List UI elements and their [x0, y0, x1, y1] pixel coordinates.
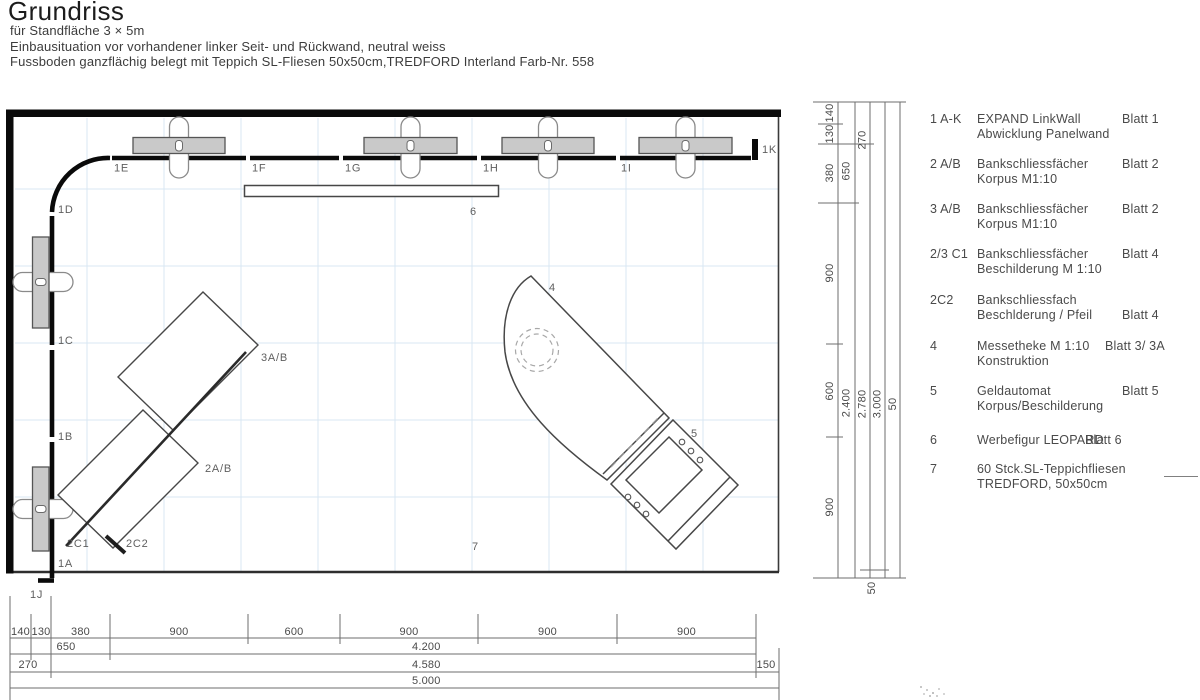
- legend-description: Geldautomat Korpus/Beschilderung: [977, 384, 1127, 413]
- legend-description: EXPAND LinkWall Abwicklung Panelwand: [977, 112, 1127, 141]
- legend-code: 5: [930, 384, 937, 398]
- pencil-smudge: [920, 686, 922, 688]
- svg-text:270: 270: [857, 131, 869, 150]
- svg-text:380: 380: [824, 164, 836, 183]
- leopard-figure-plan: [245, 186, 499, 197]
- legend-desc-line1: Bankschliessfächer: [977, 247, 1127, 262]
- legend-code: 4: [930, 339, 937, 353]
- legend-code: 7: [930, 462, 937, 476]
- item-label-korpus3: 3A/B: [261, 352, 288, 364]
- wall-label-1h: 1H: [483, 163, 499, 175]
- legend-desc-line1: Bankschliessfach: [977, 293, 1127, 308]
- legend-description: 60 Stck.SL-Teppichfliesen TREDFORD, 50x5…: [977, 462, 1127, 491]
- legend-desc-line1: 60 Stck.SL-Teppichfliesen: [977, 462, 1127, 477]
- wall-label-1d: 1D: [58, 204, 74, 216]
- outer-wall-left: [6, 110, 14, 574]
- svg-text:380: 380: [71, 626, 90, 638]
- dimension-text-bottom: 140 130 380 900 600 900 900 900 650 270 …: [11, 626, 775, 687]
- dimension-text-right: 140 130 380 900 600 900 650 2.400 270 2.…: [824, 104, 899, 595]
- item-label-2c1: 2C1: [67, 538, 90, 550]
- legend-code: 2/3 C1: [930, 247, 968, 261]
- locker-boxes-top: [133, 138, 732, 154]
- legend-desc-line2: Konstruktion: [977, 354, 1127, 369]
- svg-text:3.000: 3.000: [872, 390, 884, 419]
- wall-label-1a: 1A: [58, 558, 73, 570]
- svg-text:900: 900: [170, 626, 189, 638]
- legend-sheet-ref: Blatt 3/ 3A: [1105, 339, 1165, 353]
- wall-label-1b: 1B: [58, 431, 73, 443]
- svg-text:130: 130: [32, 626, 51, 638]
- legend-desc-line2: Abwicklung Panelwand: [977, 127, 1127, 142]
- item-label-2c2: 2C2: [126, 538, 149, 550]
- lockers-top: [133, 117, 732, 178]
- wall-label-1j: 1J: [30, 589, 43, 601]
- legend-desc-line1: EXPAND LinkWall: [977, 112, 1127, 127]
- wall-label-1i: 1I: [621, 163, 632, 175]
- svg-text:650: 650: [841, 162, 853, 181]
- svg-text:4.580: 4.580: [412, 659, 441, 671]
- item-label-teppich: 7: [472, 541, 479, 553]
- svg-text:600: 600: [824, 382, 836, 401]
- legend-desc-line2: Korpus M1:10: [977, 172, 1127, 187]
- svg-text:600: 600: [285, 626, 304, 638]
- item-label-leopard: 6: [470, 206, 477, 218]
- legend-code: 3 A/B: [930, 202, 961, 216]
- legend-desc-line2: Korpus/Beschilderung: [977, 399, 1127, 414]
- svg-text:900: 900: [677, 626, 696, 638]
- svg-text:900: 900: [538, 626, 557, 638]
- legend-rule-line: [1164, 476, 1198, 477]
- legend-code: 1 A-K: [930, 112, 962, 126]
- item-label-korpus2: 2A/B: [205, 463, 232, 475]
- legend-sheet-ref: Blatt 6: [1085, 433, 1122, 447]
- svg-text:4.200: 4.200: [412, 641, 441, 653]
- item-label-atm: 5: [691, 428, 698, 440]
- legend-sheet-ref: Blatt 4: [1122, 247, 1159, 261]
- legend-sheet-ref: Blatt 4: [1122, 308, 1159, 322]
- legend-desc-line2: Beschlderung / Pfeil: [977, 308, 1127, 323]
- legend-sheet-ref: Blatt 2: [1122, 202, 1159, 216]
- legend-desc-line1: Bankschliessfächer: [977, 202, 1127, 217]
- wall-label-1e: 1E: [114, 163, 129, 175]
- legend-sheet-ref: Blatt 5: [1122, 384, 1159, 398]
- svg-text:5.000: 5.000: [412, 675, 441, 687]
- wall-label-1c: 1C: [58, 335, 74, 347]
- svg-text:140: 140: [11, 626, 30, 638]
- legend-description: Bankschliessfächer Korpus M1:10: [977, 202, 1127, 231]
- legend-description: Bankschliessfach Beschlderung / Pfeil: [977, 293, 1127, 322]
- legend-desc-line2: TREDFORD, 50x50cm: [977, 477, 1127, 492]
- legend-code: 2 A/B: [930, 157, 961, 171]
- legend-description: Bankschliessfächer Beschilderung M 1:10: [977, 247, 1127, 276]
- lockers-left: [13, 237, 73, 551]
- svg-text:150: 150: [757, 659, 776, 671]
- furniture: [58, 186, 738, 554]
- svg-text:270: 270: [19, 659, 38, 671]
- svg-text:2.400: 2.400: [841, 389, 853, 418]
- legend-desc-line2: Korpus M1:10: [977, 217, 1127, 232]
- svg-text:900: 900: [824, 498, 836, 517]
- wall-label-1g: 1G: [345, 163, 361, 175]
- item-label-theke: 4: [549, 282, 556, 294]
- legend-sheet-ref: Blatt 1: [1122, 112, 1159, 126]
- legend-desc-line1: Geldautomat: [977, 384, 1127, 399]
- legend-desc-line2: Beschilderung M 1:10: [977, 262, 1127, 277]
- wall-label-1k: 1K: [762, 144, 777, 156]
- legend-sheet-ref: Blatt 2: [1122, 157, 1159, 171]
- dimension-chain-bottom: [10, 596, 779, 700]
- legend-code: 6: [930, 433, 937, 447]
- legend-desc-line1: Bankschliessfächer: [977, 157, 1127, 172]
- svg-text:650: 650: [57, 641, 76, 653]
- svg-text:900: 900: [400, 626, 419, 638]
- svg-text:140: 140: [824, 104, 836, 123]
- svg-text:900: 900: [824, 264, 836, 283]
- svg-text:50: 50: [866, 582, 878, 595]
- outer-wall-top: [6, 110, 781, 118]
- svg-text:130: 130: [824, 125, 836, 144]
- legend-description: Bankschliessfächer Korpus M1:10: [977, 157, 1127, 186]
- svg-text:50: 50: [887, 398, 899, 411]
- wall-label-1f: 1F: [252, 163, 266, 175]
- legend-code: 2C2: [930, 293, 954, 307]
- svg-text:2.780: 2.780: [857, 390, 869, 419]
